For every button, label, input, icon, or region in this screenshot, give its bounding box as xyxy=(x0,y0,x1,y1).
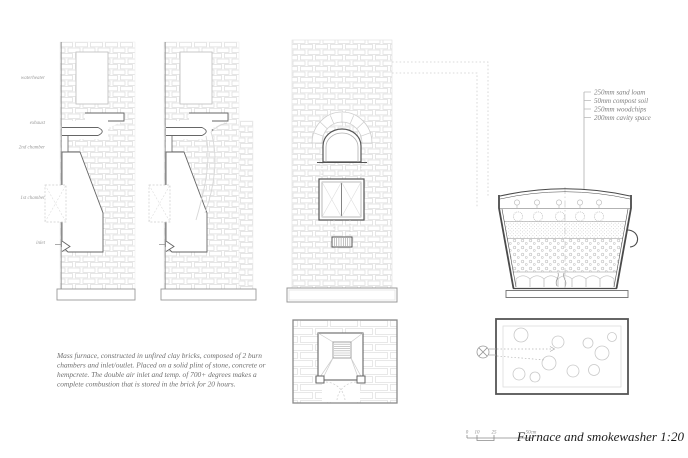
flow-dot xyxy=(212,129,214,131)
scale-tick-0: 0 xyxy=(466,431,469,436)
ash-door-dashed xyxy=(45,185,66,222)
plinth-section-2 xyxy=(161,289,256,300)
annotation-line-2: chambers and inlet/outlet. Placed on a s… xyxy=(57,361,266,370)
layer-legend: 250mm sand loam 50mm compost soil 250mm … xyxy=(584,88,651,190)
elevation-brick-wall xyxy=(292,40,392,288)
legend-item-woodchips: 250mm woodchips xyxy=(594,105,647,113)
legend-item-sand: 250mm sand loam xyxy=(594,88,645,96)
plinth-section-1 xyxy=(57,289,135,300)
furnace-section-1 xyxy=(45,42,135,289)
throat xyxy=(62,136,68,153)
furnace-section-2 xyxy=(149,42,239,289)
annotation-paragraph: Mass furnace, constructed in unfired cla… xyxy=(56,351,266,389)
brickwork-extension xyxy=(239,121,253,289)
elevation-plinth xyxy=(287,288,397,302)
vessel-base-slab xyxy=(506,291,628,298)
plan-grille xyxy=(333,342,351,358)
annotation-line-3: hempcrete. The double air inlet and temp… xyxy=(57,370,257,379)
duct-leader-lines xyxy=(392,62,488,208)
furnace-doors xyxy=(319,179,364,220)
baffle-nose xyxy=(62,128,102,136)
label-inlet: inlet xyxy=(36,241,45,246)
annotation-line-4: complete combustion that is stored in th… xyxy=(57,380,236,389)
legend-item-compost: 50mm compost soil xyxy=(594,97,648,105)
section-labels: waterheater exhaust 2nd chamber 1st cham… xyxy=(19,76,46,246)
label-2nd-chamber: 2nd chamber xyxy=(19,146,45,151)
annotation-line-1: Mass furnace, constructed in unfired cla… xyxy=(56,351,262,360)
smokewasher-section xyxy=(499,187,638,298)
sheet-title: Furnace and smokewasher 1:20 xyxy=(516,429,685,444)
vent-grille xyxy=(332,237,352,247)
label-1st-chamber: 1st chamber xyxy=(20,196,45,201)
drawing-sheet: waterheater exhaust 2nd chamber 1st cham… xyxy=(0,0,688,458)
door-jamb-left xyxy=(316,376,324,383)
label-waterheater: waterheater xyxy=(21,76,45,81)
furnace-plan xyxy=(293,320,397,403)
scale-tick-10: 10 xyxy=(475,431,481,436)
legend-item-cavity: 200mm cavity space xyxy=(594,114,651,122)
door-jamb-right xyxy=(357,376,365,383)
smokewasher-plan xyxy=(477,319,628,394)
inlet-valve-icon xyxy=(477,346,496,358)
spout xyxy=(627,230,638,247)
scale-tick-25: 25 xyxy=(492,431,498,436)
plant-icons xyxy=(514,200,601,208)
waterheater-cavity xyxy=(76,52,108,104)
label-exhaust: exhaust xyxy=(30,121,46,126)
furnace-elevation xyxy=(287,40,397,302)
drawing-canvas: waterheater exhaust 2nd chamber 1st cham… xyxy=(0,0,688,458)
